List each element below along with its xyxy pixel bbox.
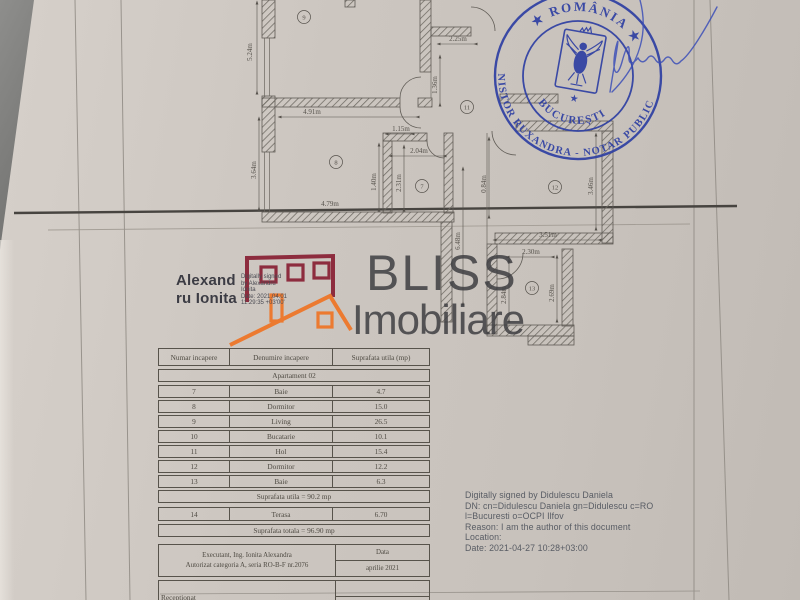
receptionat-label: Receptionat — [159, 581, 336, 600]
cell-room-area: 26.5 — [333, 416, 429, 427]
cell-room-number: 11 — [159, 446, 230, 457]
cell-room-area: 4.7 — [333, 386, 429, 397]
notary-stamp: ★ ROMÂNIA ★ NISTOR RUXANDRA - NOTAR PUBL… — [482, 0, 674, 172]
digital-signature-block: Digitally signed by Didulescu Daniela DN… — [465, 490, 653, 554]
room-number-label: 11 — [464, 105, 470, 112]
table-header-row: Numar incapere Denumire incapere Suprafa… — [158, 348, 430, 366]
cell-room-name: Baie — [230, 476, 333, 487]
dim-label: 3.64m — [250, 161, 258, 179]
pen-signature — [610, 0, 717, 92]
table-row: 8 Dormitor 15.0 — [158, 400, 430, 413]
executant-row: Executant, Ing. Ionita Alexandra Autoriz… — [158, 544, 430, 577]
date-value: aprilie 2021 — [336, 561, 429, 576]
digital-signature-line: Reason: I am the author of this document — [465, 522, 653, 533]
table-row: 13 Baie 6.3 — [158, 475, 430, 488]
cell-room-name: Terasa — [230, 508, 333, 520]
coat-of-arms — [555, 23, 607, 93]
cell-room-area: 6.3 — [333, 476, 429, 487]
alexandru-signature-block: Alexand ru Ionita Digitally signed by Al… — [176, 272, 293, 308]
signer-name: Alexand ru Ionita — [176, 272, 237, 308]
total-row: Suprafata totala = 96.90 mp — [158, 524, 430, 537]
executant-name: Executant, Ing. Ionita Alexandra — [202, 552, 292, 559]
cell-room-number: 7 — [159, 386, 230, 397]
executant-cell: Executant, Ing. Ionita Alexandra Autoriz… — [159, 545, 336, 576]
cell-room-number: 14 — [159, 508, 230, 520]
signature-detail-line: by Alexandru — [241, 281, 293, 288]
digital-signature-line: Date: 2021-04-27 10:28+03:00 — [465, 543, 653, 554]
table-row: 10 Bucatarie 10.1 — [158, 430, 430, 443]
receptionat-row: Receptionat — [158, 580, 430, 600]
header-room-name: Denumire incapere — [230, 349, 333, 365]
digital-signature-line: Location: — [465, 532, 653, 543]
dim-label: 0.84m — [480, 175, 488, 193]
apartment-label-row: Apartament 02 — [158, 369, 430, 382]
digital-signature-line: Digitally signed by Didulescu Daniela — [465, 490, 653, 501]
room-number-label: 9 — [302, 15, 305, 22]
cell-room-name: Dormitor — [230, 461, 333, 472]
dim-label: 2.30m — [522, 248, 540, 256]
watermark-brand-subtitle: Imobiliare — [352, 296, 524, 344]
room-areas-table: Numar incapere Denumire incapere Suprafa… — [158, 348, 430, 600]
date-cell: Data aprilie 2021 — [336, 545, 429, 576]
cell-room-number: 10 — [159, 431, 230, 442]
dim-label: 3.46m — [587, 177, 595, 195]
room-number-label: 7 — [420, 184, 424, 191]
cell-room-number: 12 — [159, 461, 230, 472]
dim-label: 1.40m — [370, 173, 378, 191]
signer-name-line2: ru Ionita — [176, 290, 237, 308]
dim-label: 4.91m — [303, 108, 321, 116]
digital-signature-line: l=Bucuresti o=OCPI Ilfov — [465, 511, 653, 522]
cell-room-name: Hol — [230, 446, 333, 457]
signature-detail-line: Digitally signed — [241, 274, 293, 281]
receptionat-empty-cells — [336, 581, 429, 600]
dim-label: 3.51m — [539, 231, 557, 239]
table-row: 9 Living 26.5 — [158, 415, 430, 428]
thin-horizontal-rule — [48, 224, 690, 230]
dim-label: 1.15m — [392, 125, 410, 133]
table-row: 11 Hol 15.4 — [158, 445, 430, 458]
dim-label: 2.69m — [548, 284, 556, 302]
watermark-brand-name: BLISS — [366, 244, 518, 302]
logo-window — [314, 263, 329, 278]
header-room-number: Numar incapere — [159, 349, 230, 365]
logo-small-window — [318, 313, 332, 327]
header-room-area: Suprafata utila (mp) — [333, 349, 429, 365]
digital-signature-line: DN: cn=Didulescu Daniela gn=Didulescu c=… — [465, 501, 653, 512]
dim-label: 2.31m — [395, 174, 403, 192]
cell-room-name: Living — [230, 416, 333, 427]
signature-details: Digitally signed by Alexandru Ionita Dat… — [241, 272, 293, 308]
room-number-label: 12 — [552, 185, 559, 192]
stamp-country-text: ★ ROMÂNIA ★ — [526, 0, 650, 48]
cell-room-name: Baie — [230, 386, 333, 397]
dim-label: 5.24m — [246, 43, 254, 61]
cell-room-area: 12.2 — [333, 461, 429, 472]
subtotal-row: Suprafata utila = 90.2 mp — [158, 490, 430, 503]
table-row: 7 Baie 4.7 — [158, 385, 430, 398]
executant-authorization: Autorizat categoria A, seria RO-B-F nr.2… — [186, 562, 309, 569]
terrace-row: 14 Terasa 6.70 — [158, 507, 430, 521]
signature-detail-line: Date: 2021.04.01 — [241, 294, 293, 301]
dim-label: 1.36m — [431, 76, 439, 94]
dim-label: 2.04m — [410, 147, 428, 155]
cell-room-area: 10.1 — [333, 431, 429, 442]
cell-room-name: Dormitor — [230, 401, 333, 412]
date-label: Data — [336, 545, 429, 561]
dim-label: 2.25m — [449, 35, 467, 43]
table-row: 12 Dormitor 12.2 — [158, 460, 430, 473]
signer-name-line1: Alexand — [176, 272, 237, 290]
photographed-cadastral-document: 5.24m 2.25m 1.36m 4.91m 1.15m 2.04m 1.40… — [0, 0, 800, 600]
signature-detail-line: Ionita — [241, 287, 293, 294]
room-number-label: 8 — [334, 160, 337, 167]
stamp-star: ★ — [569, 93, 580, 105]
room-number-label: 13 — [529, 286, 536, 293]
dim-label: 4.79m — [321, 200, 339, 208]
cell-room-number: 8 — [159, 401, 230, 412]
cell-room-number: 9 — [159, 416, 230, 427]
cell-room-number: 13 — [159, 476, 230, 487]
cell-room-area: 15.4 — [333, 446, 429, 457]
cell-room-area: 6.70 — [333, 508, 429, 520]
signature-detail-line: 11:29:35 +03'00' — [241, 300, 293, 307]
cell-room-area: 15.0 — [333, 401, 429, 412]
cell-room-name: Bucatarie — [230, 431, 333, 442]
svg-text:★ ROMÂNIA ★: ★ ROMÂNIA ★ — [526, 0, 650, 48]
empty-cell — [336, 581, 429, 597]
